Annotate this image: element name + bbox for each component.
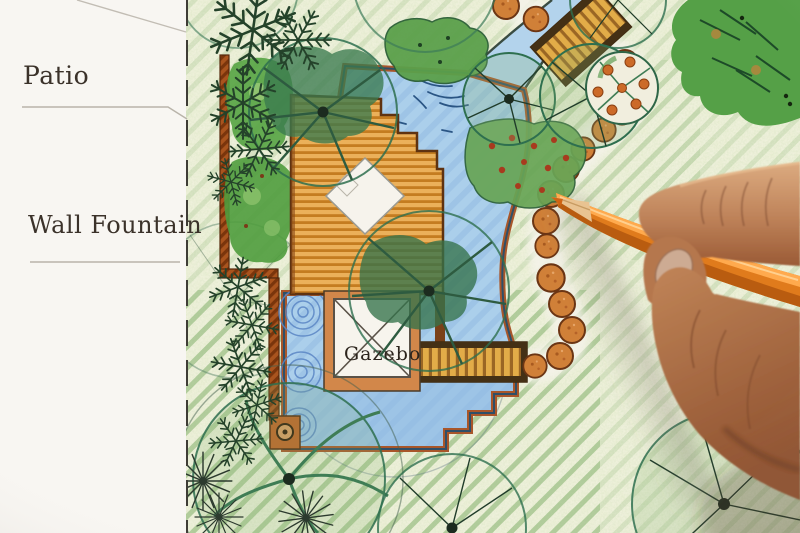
label-patio: Patio [23,63,89,88]
label-gazebo: Gazebo [344,345,421,364]
landscape-plan-drawing [0,0,800,533]
label-wall-fountain: Wall Fountain [28,213,202,237]
photo-scene: Patio Wall Fountain Gazebo [0,0,800,533]
vignette [0,0,800,533]
